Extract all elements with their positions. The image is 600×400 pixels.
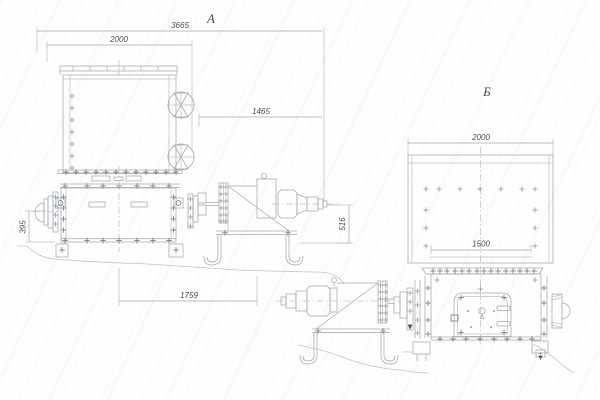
access-door — [451, 293, 511, 337]
bearing-housing-b — [552, 294, 570, 328]
dim-shaft-height: 395 — [19, 211, 56, 242]
motor-a — [272, 190, 340, 218]
dim-drive-value: 1465 — [252, 107, 270, 116]
door-hinge-bottom — [497, 322, 510, 327]
motor-mount-plate-a — [218, 183, 228, 224]
coupling-b — [388, 280, 420, 338]
flange-b — [422, 268, 543, 274]
hopper-a — [60, 60, 177, 173]
ground-line-b-left — [298, 345, 428, 373]
dim-drive-length: 1465 — [199, 107, 322, 127]
dim-base-value: 1759 — [180, 291, 198, 300]
dim-inner-width-b: 1500 — [431, 240, 531, 255]
dim-hopper-value-b: 2000 — [471, 133, 490, 142]
dim-shaft-value: 395 — [19, 220, 28, 234]
door-hinge-top — [497, 306, 510, 311]
dim-base-span: 1759 — [119, 268, 257, 306]
butterfly-valve-top — [167, 91, 195, 119]
drawing-canvas: А 3665 2000 1465 — [0, 0, 600, 400]
view-a: А 3665 2000 1465 — [17, 11, 353, 306]
dim-hopper-width-b: 2000 — [408, 133, 553, 158]
ground-line-b-right — [533, 344, 574, 373]
gearbox-bracket-a — [228, 173, 289, 231]
dim-overall-length: 3665 — [37, 21, 324, 202]
dim-hopper-width-a: 2000 — [47, 35, 192, 152]
view-a-label: А — [206, 11, 215, 26]
view-b: Б 2000 — [276, 84, 574, 373]
drive-a — [188, 173, 352, 265]
trough-a — [56, 166, 183, 257]
dim-drive-height: 516 — [327, 205, 353, 243]
gearbox-bracket-b — [300, 281, 398, 364]
butterfly-valve-bottom — [167, 143, 195, 171]
technical-drawing-svg: А 3665 2000 1465 — [0, 0, 600, 400]
drive-base-a — [204, 230, 352, 265]
dim-inner-value: 1500 — [472, 240, 490, 249]
view-b-label: Б — [482, 84, 491, 99]
door-latch — [451, 315, 458, 321]
dim-height-value: 516 — [338, 217, 347, 231]
trough-b — [402, 266, 548, 361]
dim-overall-value: 3665 — [171, 21, 189, 30]
dim-hopper-value-a: 2000 — [109, 35, 128, 44]
flange-stack-a — [58, 169, 182, 189]
shaft-end-a — [33, 192, 62, 232]
